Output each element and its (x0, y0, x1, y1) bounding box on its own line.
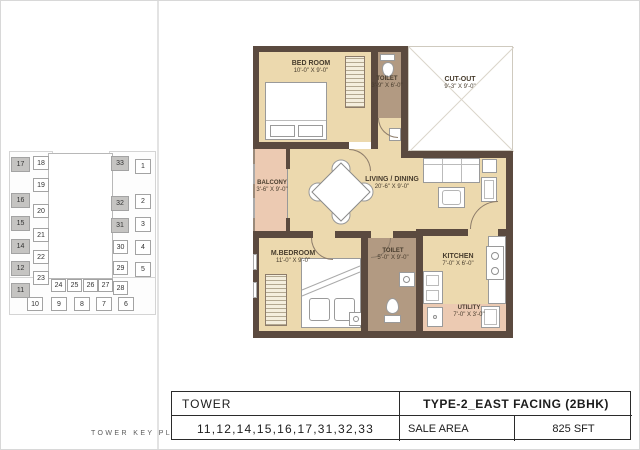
label-bedroom: BED ROOM 10'-0" X 9'-0" (271, 60, 351, 76)
key-plan-unit-16: 16 (11, 193, 30, 208)
key-plan-unit-24: 24 (51, 279, 66, 292)
key-plan-unit-30: 30 (113, 240, 128, 254)
key-plan-unit-6: 6 (118, 297, 134, 311)
pillow (309, 298, 330, 321)
sale-area-value: 825 SFT (515, 416, 632, 441)
burner (491, 252, 499, 260)
key-plan-unit-2: 2 (135, 194, 151, 209)
label-master-bedroom: M.BEDROOM 11'-0" X 9'-0" (261, 250, 325, 266)
key-plan-unit-27: 27 (98, 279, 113, 292)
armchair-seat (484, 180, 494, 199)
wardrobe (265, 274, 287, 326)
key-plan-unit-22: 22 (33, 250, 49, 264)
key-plan-unit-15: 15 (11, 216, 30, 231)
key-plan-unit-12: 12 (11, 261, 30, 276)
info-table: TOWER TYPE-2_EAST FACING (2BHK) 11,12,14… (171, 391, 631, 440)
key-plan-unit-14: 14 (11, 239, 30, 254)
burner (491, 267, 499, 275)
sofa (423, 158, 480, 183)
sofa-cushion-line (461, 159, 462, 182)
key-plan-unit-19: 19 (33, 178, 49, 192)
wc-tank (384, 315, 401, 323)
wall (253, 46, 259, 142)
key-plan-courtyard (48, 153, 113, 279)
key-plan-unit-21: 21 (33, 228, 49, 242)
key-plan-unit-26: 26 (83, 279, 98, 292)
label-toilet-top: TOILET 3'-9" X 6'-0" (365, 76, 409, 90)
key-plan-unit-18: 18 (33, 156, 49, 170)
key-plan-unit-4: 4 (135, 240, 151, 255)
cut-out-diagonals-icon (409, 47, 514, 152)
coffee-table-top (442, 190, 461, 205)
bed-line (266, 120, 326, 121)
utility-sink-drain (433, 315, 437, 319)
wall (253, 46, 408, 52)
wc-bowl (386, 298, 399, 314)
kitchen-sink (426, 275, 439, 286)
wall (416, 231, 423, 338)
wall (498, 229, 506, 236)
stool-dot (353, 316, 359, 322)
tower-header: TOWER (172, 392, 400, 416)
unit-floor-plan: BED ROOM 10'-0" X 9'-0" TOILET 3'-9" X 6… (253, 46, 513, 338)
key-plan-unit-8: 8 (74, 297, 90, 311)
key-plan-unit-23: 23 (33, 271, 49, 285)
key-plan-unit-33: 33 (111, 156, 129, 171)
wall (253, 331, 513, 338)
label-balcony: BALCONY 3'-6" X 9'-0" (250, 180, 294, 194)
key-plan-unit-7: 7 (96, 297, 112, 311)
tower-numbers: 11,12,14,15,16,17,31,32,33 (172, 416, 400, 441)
wall (393, 231, 416, 238)
wall (416, 229, 468, 236)
key-plan-unit-25: 25 (67, 279, 82, 292)
wall (371, 46, 378, 149)
wall (286, 149, 290, 169)
key-plan-unit-20: 20 (33, 204, 49, 218)
wall (401, 151, 513, 158)
key-plan-unit-11: 11 (11, 283, 30, 298)
sofa-cushion-line (442, 159, 443, 182)
key-plan-unit-1: 1 (135, 159, 151, 174)
panel-divider (157, 1, 159, 450)
type-header: TYPE-2_EAST FACING (2BHK) (400, 392, 632, 416)
key-plan-unit-32: 32 (111, 196, 129, 211)
label-living-dining: LIVING / DINING 20'-6" X 9'-0" (353, 176, 431, 192)
wc-tank (380, 54, 395, 61)
side-table (482, 159, 497, 173)
wall (253, 231, 313, 238)
wall (361, 231, 368, 338)
kitchen-shelf (426, 290, 439, 301)
key-plan-unit-31: 31 (111, 218, 129, 233)
floor-plan-page: 1716151412111819202122232425262733323130… (0, 0, 640, 450)
wall (253, 142, 349, 149)
label-kitchen: KITCHEN 7'-0" X 6'-0" (431, 253, 485, 269)
window (253, 254, 257, 270)
label-toilet-bottom: TOILET 5'-0" X 9'-0" (369, 248, 417, 262)
sofa-back-line (424, 164, 479, 165)
label-cut-out: CUT-OUT 9'-3" X 9'-0" (420, 76, 500, 92)
key-plan-unit-5: 5 (135, 262, 151, 277)
label-utility: UTILITY 7'-0" X 3'-0" (443, 305, 495, 319)
key-plan-unit-3: 3 (135, 217, 151, 232)
sale-area-label: SALE AREA (400, 416, 515, 441)
window (253, 282, 257, 298)
key-plan-unit-17: 17 (11, 157, 30, 172)
wall (506, 158, 513, 338)
pillow (298, 125, 323, 137)
pillow (270, 125, 295, 137)
key-plan-unit-9: 9 (51, 297, 67, 311)
key-plan-unit-10: 10 (27, 297, 43, 311)
washbasin-bowl (403, 276, 410, 283)
tower-key-plan: 1716151412111819202122232425262733323130… (1, 1, 157, 450)
window (253, 198, 255, 218)
key-plan-unit-28: 28 (113, 281, 128, 295)
key-plan-unit-29: 29 (113, 261, 128, 275)
room-cut-out (408, 46, 513, 151)
wall (401, 46, 408, 158)
